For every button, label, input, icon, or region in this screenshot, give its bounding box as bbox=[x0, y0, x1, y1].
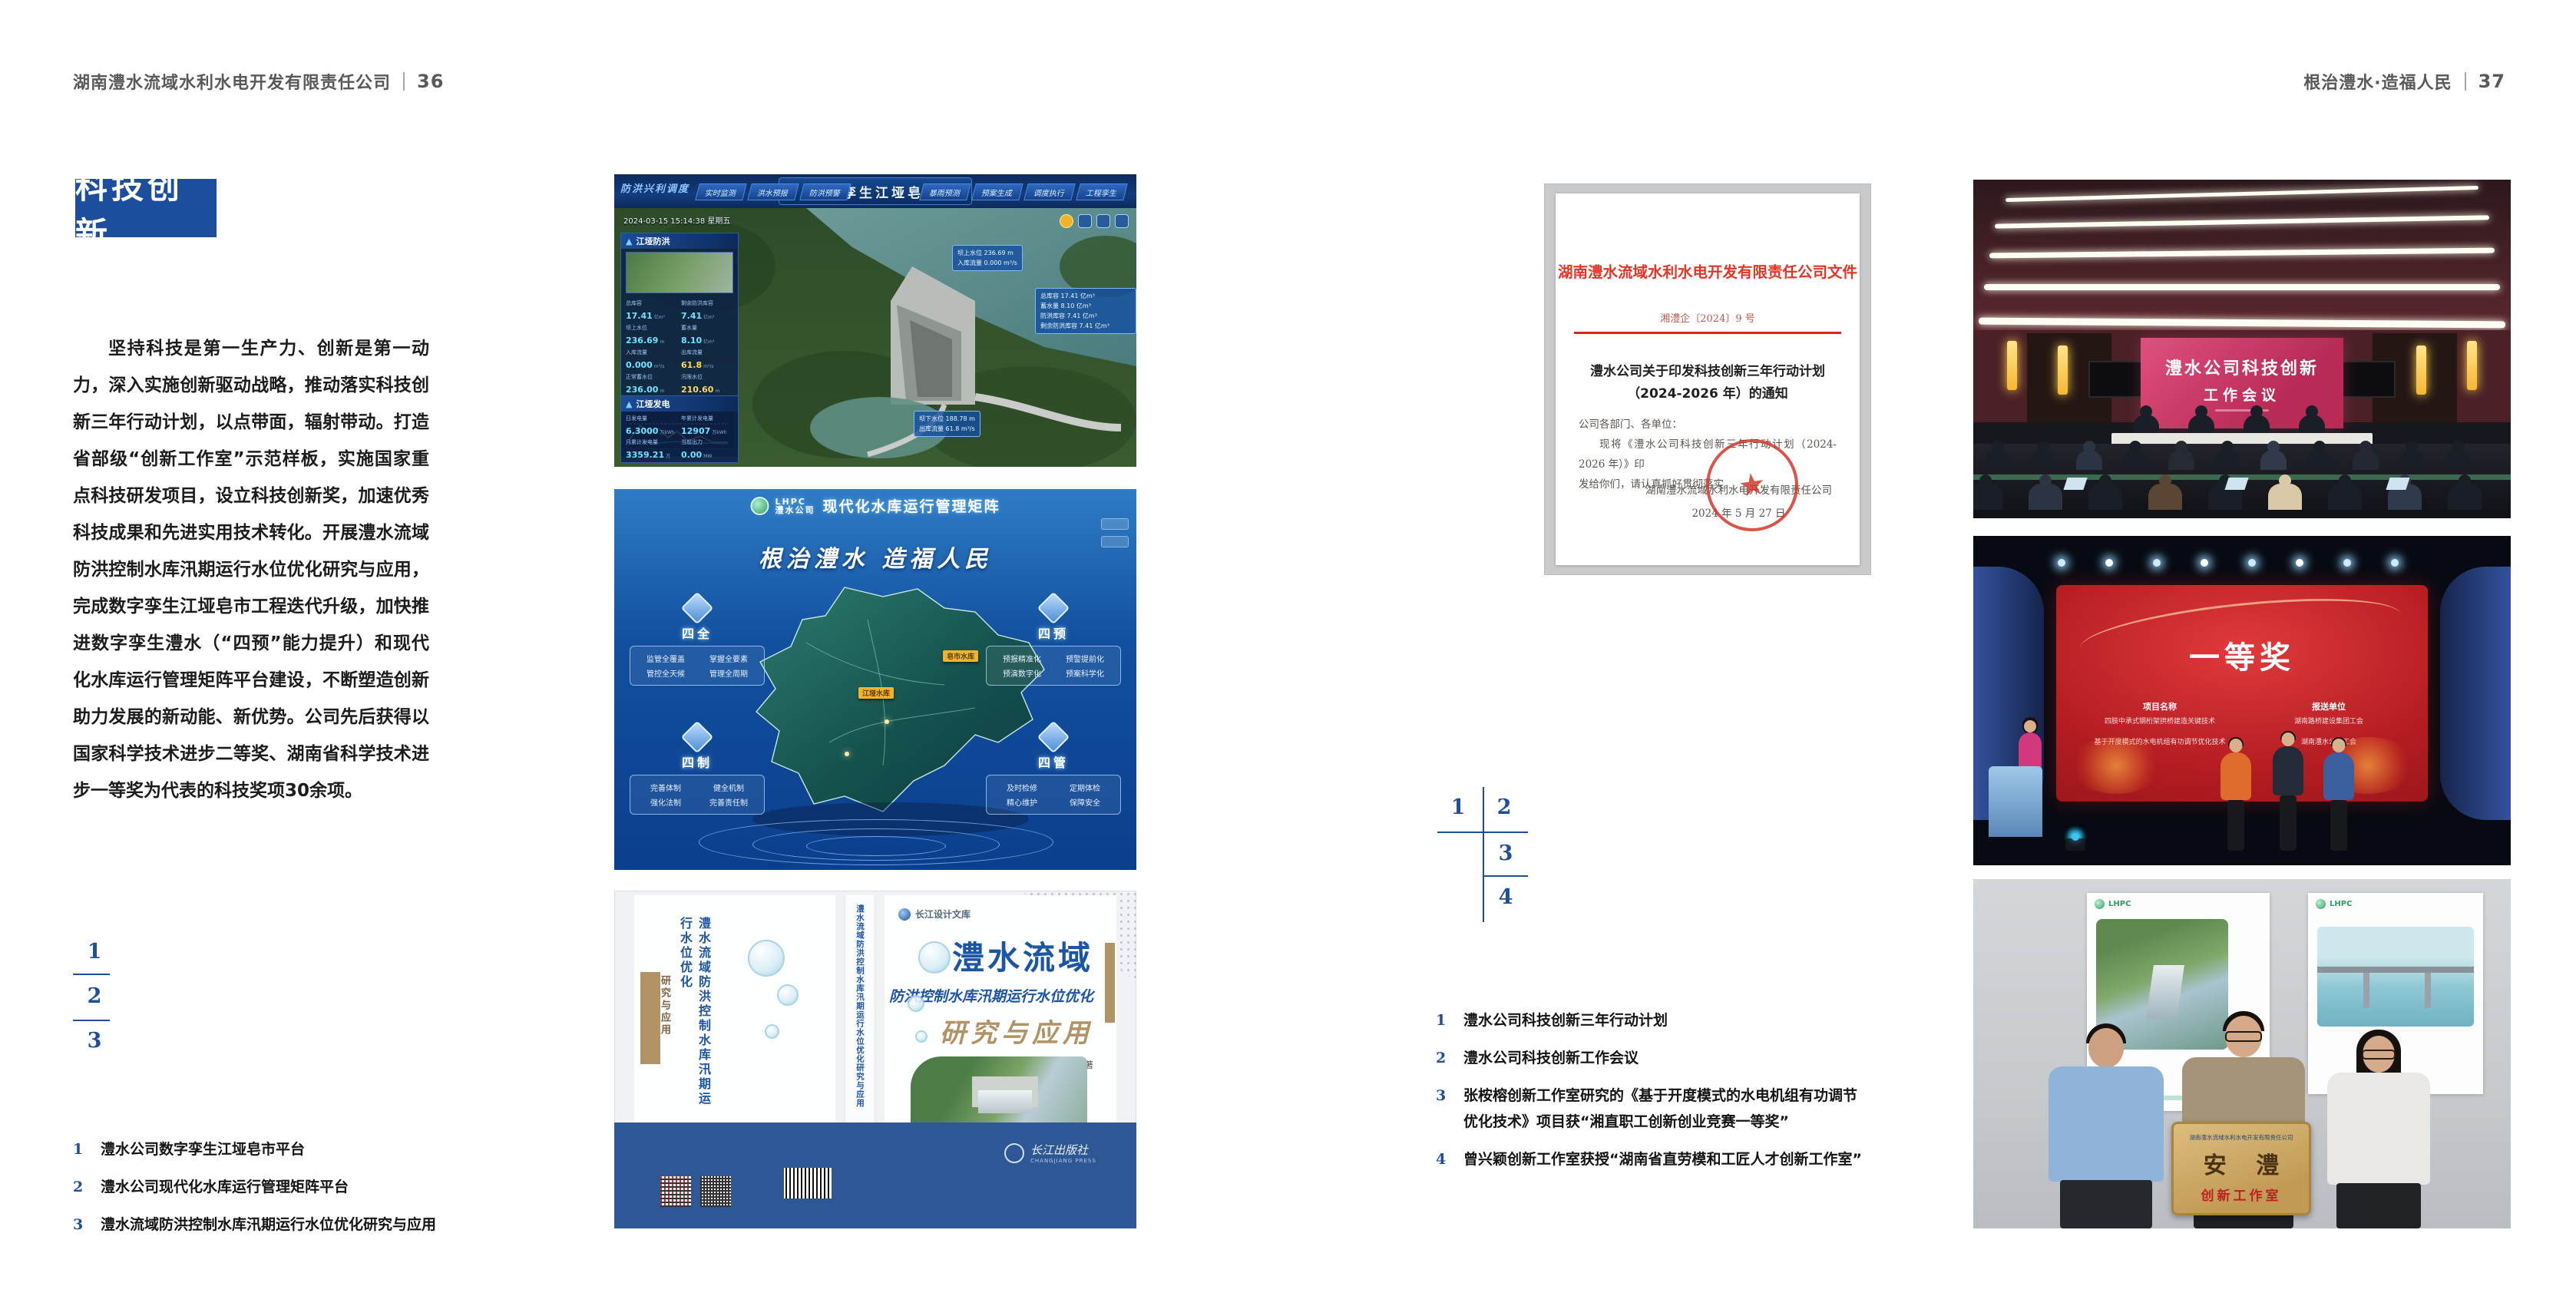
figure-index-2: 2 bbox=[84, 984, 104, 1008]
tv-screen bbox=[2088, 361, 2148, 398]
flood-panel-title: 江垭防洪 bbox=[636, 235, 670, 247]
locate-icon[interactable] bbox=[1096, 214, 1110, 228]
power-panel-title: 江垭发电 bbox=[636, 398, 670, 410]
right-page-header: 根治澧水·造福人民 37 bbox=[2303, 69, 2505, 94]
caption-item: 2 澧水公司现代化水库运行管理矩阵平台 bbox=[73, 1177, 549, 1197]
company-name: 湖南澧水流域水利水电开发有限责任公司 bbox=[73, 69, 391, 94]
wall-lamp-icon bbox=[2058, 346, 2068, 395]
panel-logo-icon: ▲ bbox=[626, 399, 632, 409]
publisher-name: 长江出版社 bbox=[1030, 1142, 1096, 1158]
cube-icon bbox=[1037, 592, 1070, 624]
back-cover-accent: 研究与应用 bbox=[657, 975, 672, 1066]
alert-icon[interactable] bbox=[1060, 214, 1073, 228]
figure-book-cover: 澧水流域防洪控制水库汛期运行水位优化 研究与应用 澧水流域防洪控制水库汛期运行水… bbox=[614, 891, 1136, 1228]
flood-stats: 总库容17.41亿m³ 剩余防洪库容7.41亿m³ 坝上水位236.69m 蓄水… bbox=[621, 296, 738, 398]
bridge-deck bbox=[2317, 967, 2474, 973]
ring bbox=[806, 836, 946, 856]
document-page: 湖南澧水流域水利水电开发有限责任公司文件 湘澧企〔2024〕9 号 澧水公司关于… bbox=[1556, 193, 1860, 565]
tab[interactable]: 防洪预警 bbox=[799, 184, 851, 200]
front-cover: 长江设计文库 澧水流域 防洪控制水库汛期运行水位优化 研究与应用 洪兴骏 沈坤民… bbox=[885, 895, 1116, 1122]
stage-side-right bbox=[2440, 567, 2511, 820]
glasses-icon bbox=[2225, 1031, 2262, 1042]
photo-studio-plaque: LHPC LHPC bbox=[1973, 879, 2511, 1228]
bubble bbox=[915, 1030, 928, 1043]
tab[interactable]: 洪水预报 bbox=[747, 184, 799, 200]
bubble bbox=[777, 984, 799, 1006]
woman-white-top bbox=[2317, 1030, 2440, 1228]
award-col2-header: 报送单位 bbox=[2264, 700, 2394, 713]
section-badge: 科技创新 bbox=[75, 179, 217, 237]
left-caption-list: 1 澧水公司数字孪生江垭皂市平台 2 澧水公司现代化水库运行管理矩阵平台 3 澧… bbox=[73, 1139, 549, 1235]
caption-item: 3 张桉榕创新工作室研究的《基于开度模式的水电机组有功调节 优化技术》项目获“湘… bbox=[1436, 1086, 1973, 1132]
map-tag-upstream: 坝上水位 236.69 m入库流量 0.000 m³/s bbox=[952, 245, 1023, 271]
weather-icon[interactable] bbox=[1115, 214, 1129, 228]
press-logo-icon bbox=[1004, 1143, 1024, 1163]
dashboard-toolbar-icons bbox=[1060, 214, 1129, 228]
map-tag-jiangya: 江垭水库 bbox=[858, 687, 894, 699]
library-logo: 长江设计文库 bbox=[898, 908, 971, 921]
lhpc-logo-icon bbox=[2316, 899, 2326, 909]
figure-index-2: 2 bbox=[1494, 795, 1514, 819]
wall-lamp-icon bbox=[2416, 346, 2426, 395]
screen-gold-glow bbox=[2070, 737, 2162, 794]
caption-item: 3 澧水流域防洪控制水库汛期运行水位优化研究与应用 bbox=[73, 1215, 549, 1235]
figure-index-3: 3 bbox=[84, 1029, 104, 1053]
building-icon bbox=[681, 721, 713, 753]
spine-title: 澧水流域防洪控制水库汛期运行水位优化研究与应用 bbox=[855, 904, 866, 1118]
innovation-plaque: 湖南澧水流域水利水电开发有限责任公司 安 澧 创新工作室 bbox=[2171, 1122, 2311, 1215]
qr-code bbox=[660, 1176, 691, 1207]
page-number-left: 36 bbox=[417, 71, 444, 92]
map-dot bbox=[845, 752, 849, 756]
recipient-orange bbox=[2217, 737, 2254, 852]
bubble bbox=[918, 941, 951, 974]
book-spread: 湖南澧水流域水利水电开发有限责任公司 36 科技创新 坚持科技是第一生产力、创新… bbox=[0, 0, 2576, 1306]
figure-management-matrix: LHPC 澧水公司 现代化水库运行管理矩阵 根治澧水 造福人民 皂市水库 江垭水… bbox=[614, 489, 1136, 870]
figure-index-1: 1 bbox=[84, 940, 104, 964]
dam-video-thumbnail[interactable] bbox=[626, 252, 733, 293]
plaque-title: 安 澧 bbox=[2193, 1146, 2290, 1180]
map-tag-zaoshi: 皂市水库 bbox=[943, 650, 978, 662]
screen-title-line1: 澧水公司科技创新 bbox=[2165, 355, 2319, 379]
tv-screen bbox=[2336, 361, 2396, 398]
figure-index-3: 3 bbox=[1496, 841, 1516, 865]
book-spine: 澧水流域防洪控制水库汛期运行水位优化研究与应用 bbox=[845, 895, 875, 1122]
library-name: 长江设计文库 bbox=[915, 908, 971, 921]
rostrum-speakers bbox=[2133, 415, 2325, 435]
power-panel: ▲ 江垭发电 日发电量6.3000万kWh 年累计发电量12907万kWh 月累… bbox=[620, 395, 739, 463]
bubble bbox=[908, 995, 924, 1012]
document-red-rule bbox=[1574, 332, 1841, 334]
man-blue-polo bbox=[2041, 1023, 2171, 1228]
document-number: 湘澧企〔2024〕9 号 bbox=[1556, 310, 1860, 325]
caption-item: 2 澧水公司科技创新工作会议 bbox=[1436, 1048, 1973, 1068]
plaque-subtitle: 创新工作室 bbox=[2201, 1185, 2282, 1204]
dam-photo bbox=[911, 1056, 1087, 1122]
back-cover: 澧水流域防洪控制水库汛期运行水位优化 研究与应用 bbox=[634, 895, 835, 1122]
poster-logo-text: LHPC bbox=[2108, 900, 2131, 908]
power-stats: 日发电量6.3000万kWh 年累计发电量12907万kWh 月累计发电量335… bbox=[621, 412, 738, 467]
index-divider bbox=[73, 1020, 110, 1021]
map-tag-downstream: 坝下水位 188.78 m出库流量 61.8 m³/s bbox=[914, 411, 980, 437]
award-col1-header: 项目名称 bbox=[2087, 700, 2233, 713]
group-siquan: 四全 监管全覆盖掌握全要素 管控全天候管理全周期 bbox=[636, 597, 759, 686]
caption-item: 1 澧水公司数字孪生江垭皂市平台 bbox=[73, 1139, 549, 1159]
laptop bbox=[2224, 478, 2248, 490]
recipient-suit bbox=[2270, 731, 2306, 852]
index-hline bbox=[1437, 832, 1528, 833]
header-divider bbox=[2465, 72, 2466, 91]
barcode bbox=[782, 1165, 834, 1201]
tab[interactable]: 暴雨预测 bbox=[919, 184, 971, 200]
poster-bridge-photo bbox=[2317, 927, 2474, 1027]
poster-logo-text: LHPC bbox=[2330, 900, 2352, 908]
dashboard-tabs-left: 实时监测 洪水预报 防洪预警 bbox=[697, 184, 849, 200]
audience-row bbox=[1984, 450, 2471, 470]
group-siyu: 四预 预报精准化预警提前化 预演数字化预案科学化 bbox=[992, 597, 1115, 686]
dashboard-tabs-right: 暴雨预测 预案生成 调度执行 工程孪生 bbox=[921, 184, 1126, 200]
caption-item: 4 曾兴颖创新工作室获授“湖南省直劳模和工匠人才创新工作室” bbox=[1436, 1149, 1973, 1169]
screen-title-line2: 工作会议 bbox=[2204, 384, 2280, 405]
bridge-pylon bbox=[2363, 973, 2369, 1008]
bubble bbox=[765, 1024, 779, 1039]
left-page-header: 湖南澧水流域水利水电开发有限责任公司 36 bbox=[73, 69, 444, 94]
award-title: 一等奖 bbox=[2056, 633, 2428, 677]
changjiang-logo-icon bbox=[898, 908, 911, 921]
bubble bbox=[748, 940, 785, 977]
podium bbox=[1989, 766, 2042, 837]
group-siguan: 四管 及时检修定期体检 精心维护保障安全 bbox=[992, 726, 1115, 815]
figure-index-4: 4 bbox=[1496, 885, 1516, 909]
photo-award-ceremony: 一等奖 项目名称 四肢中承式钢桁架拱桥建造关键技术 基于开度模式的水电机组有功调… bbox=[1973, 536, 2511, 865]
tab[interactable]: 预案生成 bbox=[971, 184, 1023, 200]
stage-truss-lights bbox=[2058, 559, 2399, 567]
seal-star: ★ bbox=[1736, 466, 1768, 505]
figure-index-1: 1 bbox=[1448, 795, 1468, 819]
index-hline-short bbox=[1483, 875, 1528, 877]
dashboard-datetime: 2024-03-15 15:14:38 星期五 bbox=[623, 214, 730, 226]
right-caption-list: 1 澧水公司科技创新三年行动计划 2 澧水公司科技创新工作会议 3 张桉榕创新工… bbox=[1436, 1010, 1973, 1169]
publisher-name-en: CHANGJIANG PRESS bbox=[1030, 1158, 1096, 1164]
document-title: 澧水公司关于印发科技创新三年行动计划 （2024-2026 年）的通知 bbox=[1556, 361, 1860, 405]
figure-digital-twin-dashboard: 防洪兴利调度 数字孪生江垭皂市 实时监测 洪水预报 防洪预警 暴雨预测 预案生成… bbox=[614, 174, 1136, 467]
lhpc-logo-icon bbox=[2095, 899, 2105, 909]
slogan: 根治澧水·造福人民 bbox=[2303, 69, 2452, 94]
cover-bottom-band bbox=[614, 1122, 1136, 1228]
official-document-photo: 湖南澧水流域水利水电开发有限责任公司文件 湘澧企〔2024〕9 号 澧水公司关于… bbox=[1545, 184, 1870, 574]
glasses-icon bbox=[2362, 1050, 2396, 1060]
layers-icon[interactable] bbox=[1078, 214, 1092, 228]
spillway-water bbox=[978, 1090, 1032, 1113]
qr-code bbox=[700, 1176, 731, 1207]
header-divider bbox=[403, 72, 405, 91]
map-dot bbox=[885, 719, 889, 724]
front-tan-bar bbox=[1105, 943, 1115, 1023]
plaque-company-line: 湖南澧水流域水利水电开发有限责任公司 bbox=[2190, 1133, 2293, 1142]
index-divider bbox=[73, 974, 110, 975]
section-body-text: 坚持科技是第一生产力、创新是第一动力，深入实施创新驱动战略，推动落实科技创新三年… bbox=[73, 330, 429, 809]
bridge-pylon bbox=[2425, 973, 2431, 1008]
dashboard-corner-title: 防洪兴利调度 bbox=[620, 180, 689, 195]
person-icon bbox=[1037, 721, 1070, 753]
recipient-blue bbox=[2320, 737, 2357, 852]
map-tag-reservoir-info: 总库容 17.41 亿m³蓄水量 8.10 亿m³ 防洪库容 7.41 亿m³剩… bbox=[1035, 288, 1136, 334]
tab[interactable]: 工程孪生 bbox=[1076, 184, 1127, 200]
group-sizhi: 四制 完善体制健全机制 强化法制完善责任制 bbox=[636, 726, 759, 815]
panel-logo-icon: ▲ bbox=[626, 236, 632, 246]
laptop bbox=[2386, 478, 2409, 490]
caption-item: 1 澧水公司科技创新三年行动计划 bbox=[1436, 1010, 1973, 1030]
publisher-logo: 长江出版社 CHANGJIANG PRESS bbox=[1004, 1142, 1096, 1164]
page-number-right: 37 bbox=[2478, 71, 2505, 92]
tab[interactable]: 实时监测 bbox=[695, 184, 746, 200]
laptop bbox=[2063, 478, 2087, 490]
back-cover-title: 澧水流域防洪控制水库汛期运行水位优化 bbox=[676, 917, 713, 1109]
wall-lamp-icon bbox=[2007, 341, 2017, 390]
cube-icon bbox=[681, 592, 713, 624]
wall-lamp-icon bbox=[2467, 341, 2477, 390]
index-vline bbox=[1483, 787, 1484, 922]
document-red-header: 湖南澧水流域水利水电开发有限责任公司文件 bbox=[1556, 260, 1860, 282]
photo-innovation-meeting: 澧水公司科技创新 工作会议 bbox=[1973, 180, 2511, 518]
tab[interactable]: 调度执行 bbox=[1023, 184, 1075, 200]
